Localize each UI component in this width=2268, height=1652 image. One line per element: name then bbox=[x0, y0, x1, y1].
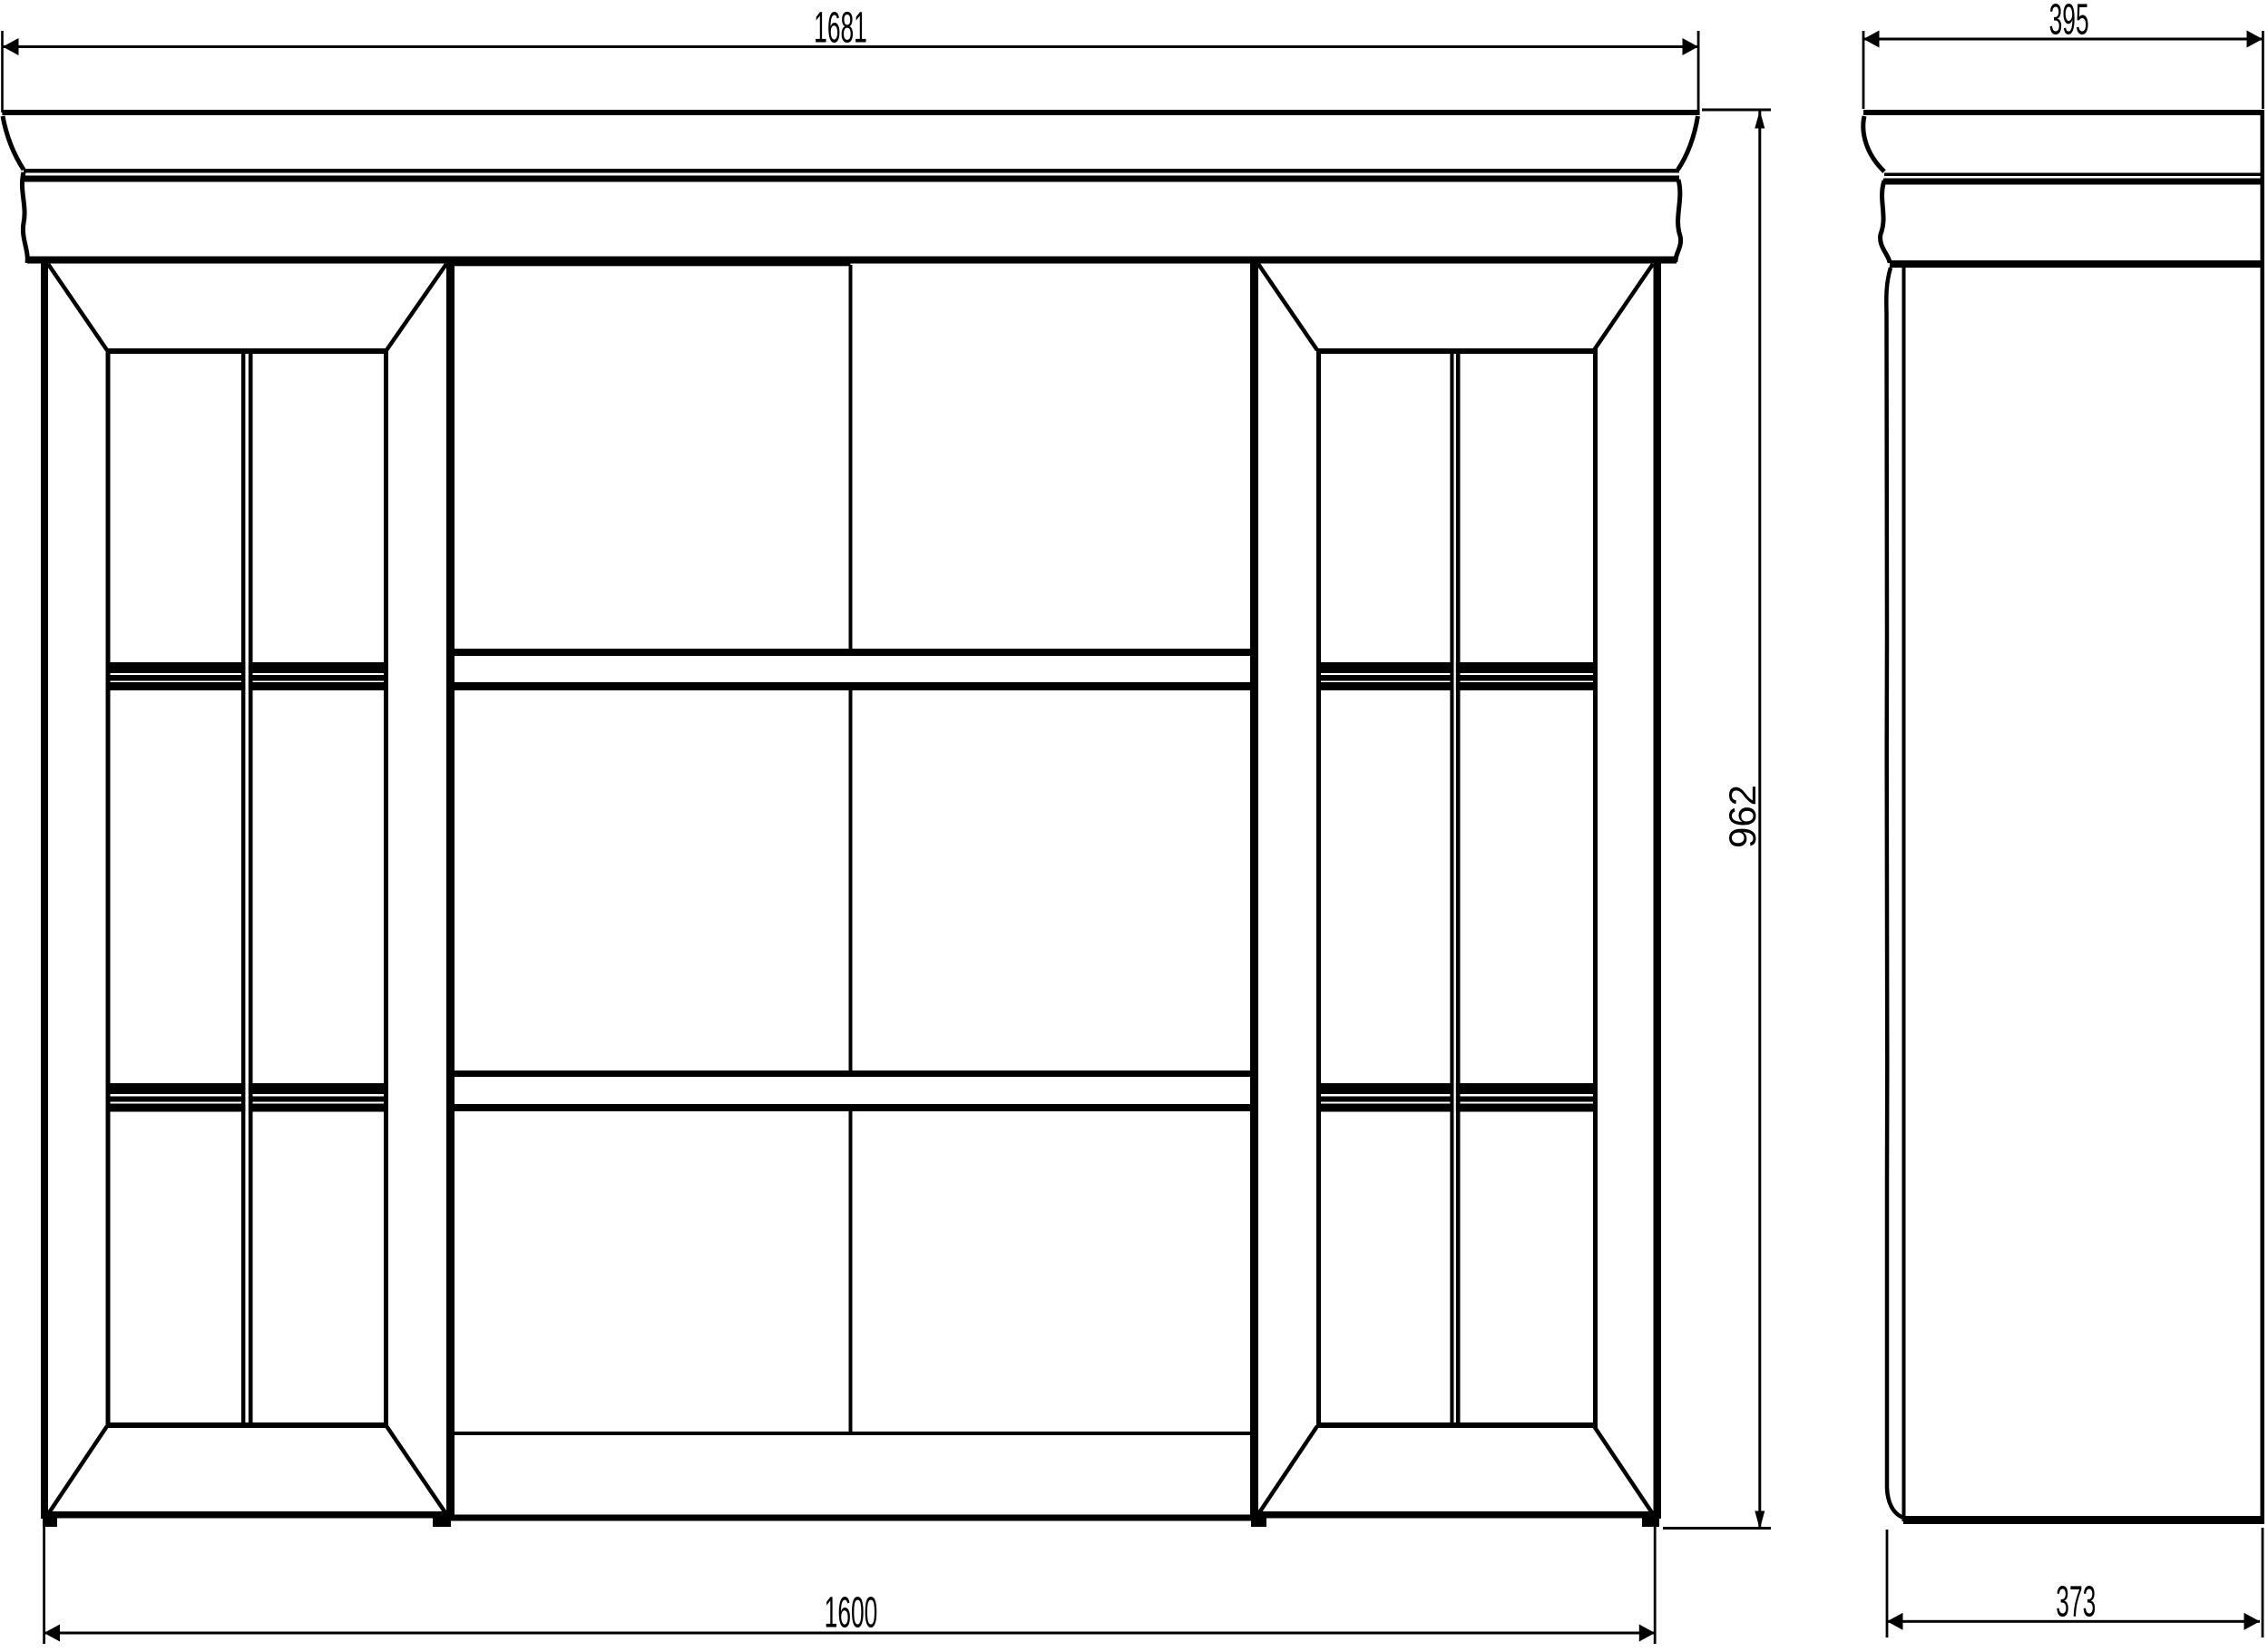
svg-text:395: 395 bbox=[2049, 0, 2089, 44]
svg-text:1681: 1681 bbox=[814, 4, 867, 52]
svg-text:373: 373 bbox=[2056, 1578, 2096, 1626]
svg-text:1600: 1600 bbox=[825, 1588, 878, 1637]
svg-text:962: 962 bbox=[1721, 785, 1764, 848]
